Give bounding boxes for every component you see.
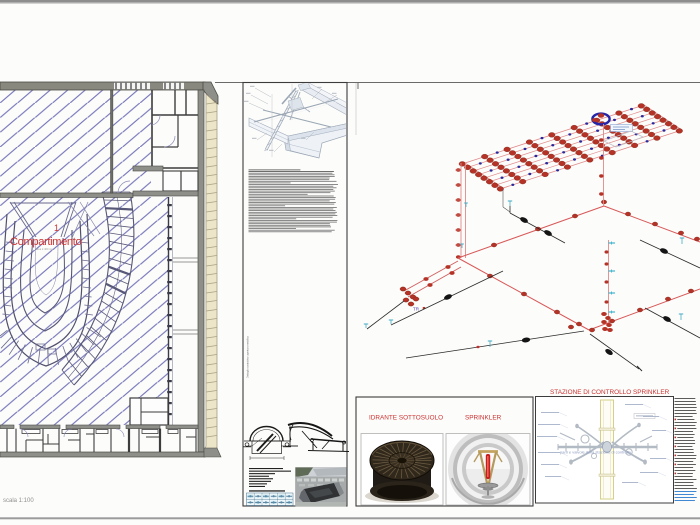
svg-text:Dettaglio costruttivo copertur: Dettaglio costruttivo copertura metallic… xyxy=(247,335,250,378)
svg-text:TR: TR xyxy=(413,307,420,312)
svg-text:area 2.400 mq: area 2.400 mq xyxy=(36,247,53,251)
svg-text:parti e valvole della stazione: parti e valvole della stazione di contro… xyxy=(560,450,631,455)
svg-text:SPRINKLER: SPRINKLER xyxy=(465,415,502,422)
svg-text:IDRANTE SOTTOSUOLO: IDRANTE SOTTOSUOLO xyxy=(369,415,443,422)
svg-text:1: 1 xyxy=(54,223,59,233)
svg-text:STAZIONE DI CONTROLLO SPRINKLE: STAZIONE DI CONTROLLO SPRINKLER xyxy=(550,389,670,396)
svg-text:scala 1:100: scala 1:100 xyxy=(3,498,34,504)
svg-text:Compartimento: Compartimento xyxy=(10,236,81,248)
